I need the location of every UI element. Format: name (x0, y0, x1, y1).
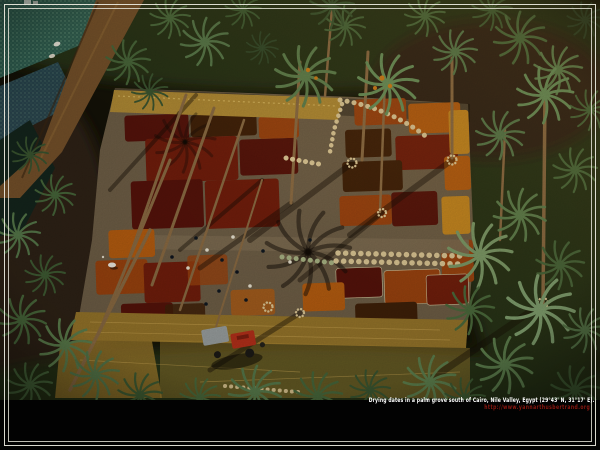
photo-region (0, 0, 600, 430)
caption: Drying dates in a palm grove south of Ca… (368, 397, 594, 411)
caption-url: http://www.yannarthusbertrand.org (368, 404, 590, 411)
film-grain (0, 0, 600, 400)
wallpaper-stage: Drying dates in a palm grove south of Ca… (0, 0, 600, 450)
aerial-photo (0, 0, 600, 450)
